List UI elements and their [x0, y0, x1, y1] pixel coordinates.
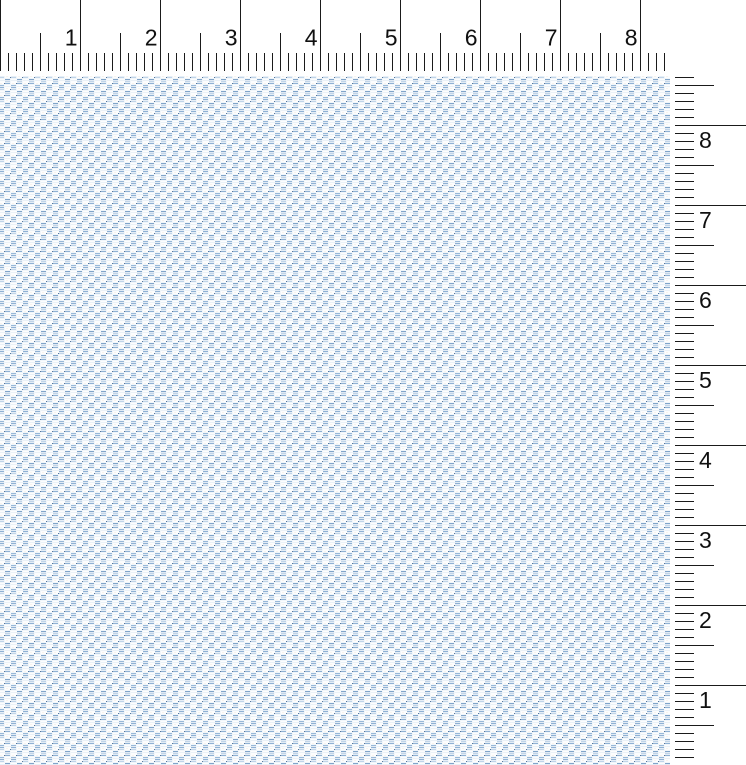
svg-text:2: 2 [699, 607, 712, 633]
svg-text:1: 1 [699, 687, 712, 713]
svg-text:4: 4 [305, 25, 318, 51]
svg-text:3: 3 [699, 527, 712, 553]
svg-text:3: 3 [225, 25, 238, 51]
svg-text:5: 5 [699, 367, 712, 393]
svg-text:6: 6 [699, 287, 712, 313]
svg-text:2: 2 [145, 25, 158, 51]
svg-text:7: 7 [699, 207, 712, 233]
svg-text:5: 5 [385, 25, 398, 51]
svg-text:1: 1 [65, 25, 78, 51]
svg-text:7: 7 [545, 25, 558, 51]
svg-text:8: 8 [625, 25, 638, 51]
svg-text:6: 6 [465, 25, 478, 51]
svg-text:8: 8 [699, 127, 712, 153]
svg-text:4: 4 [699, 447, 712, 473]
